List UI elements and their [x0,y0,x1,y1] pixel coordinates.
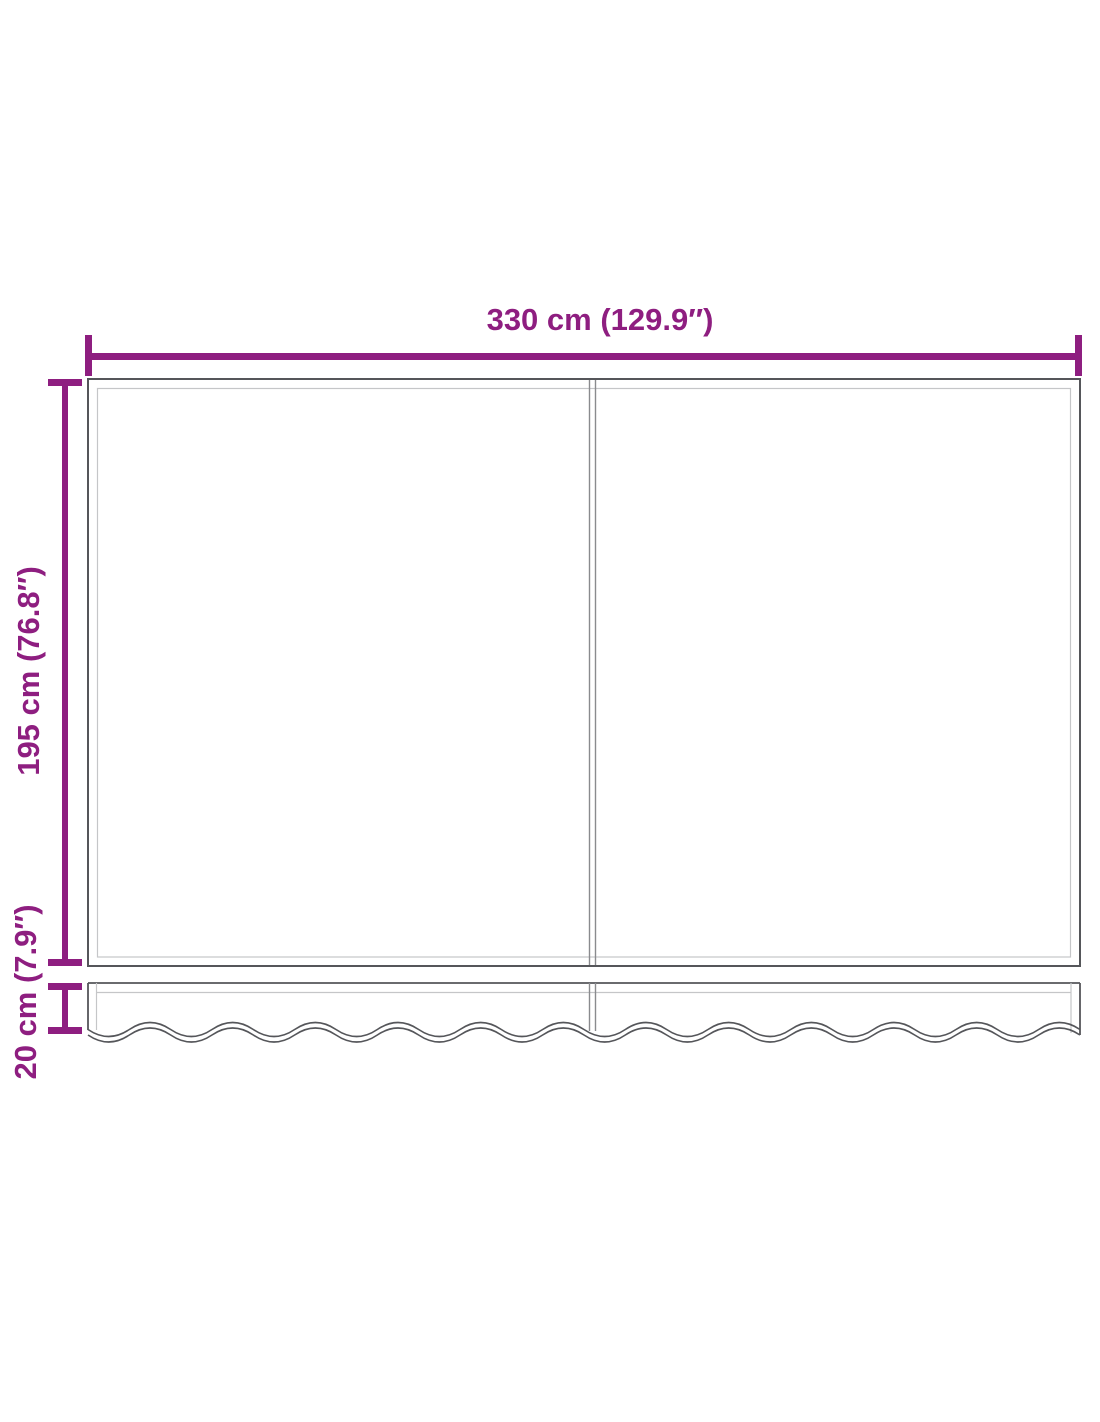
awning-dimension-diagram: 330 cm (129.9″) 195 cm (76.8″) 20 cm (7.… [0,0,1100,1422]
fabric-panel-outline [88,379,1080,966]
valance [88,983,1080,1042]
diagram-canvas: 330 cm (129.9″) 195 cm (76.8″) 20 cm (7.… [0,0,1100,1422]
height-dimension: 195 cm (76.8″) [11,380,82,966]
valance-dimension-label: 20 cm (7.9″) [8,904,43,1079]
fabric-panel [88,379,1080,966]
width-dimension-label: 330 cm (129.9″) [487,302,714,337]
height-dimension-label: 195 cm (76.8″) [11,566,46,776]
width-dimension: 330 cm (129.9″) [85,302,1082,376]
valance-dimension: 20 cm (7.9″) [8,904,82,1079]
